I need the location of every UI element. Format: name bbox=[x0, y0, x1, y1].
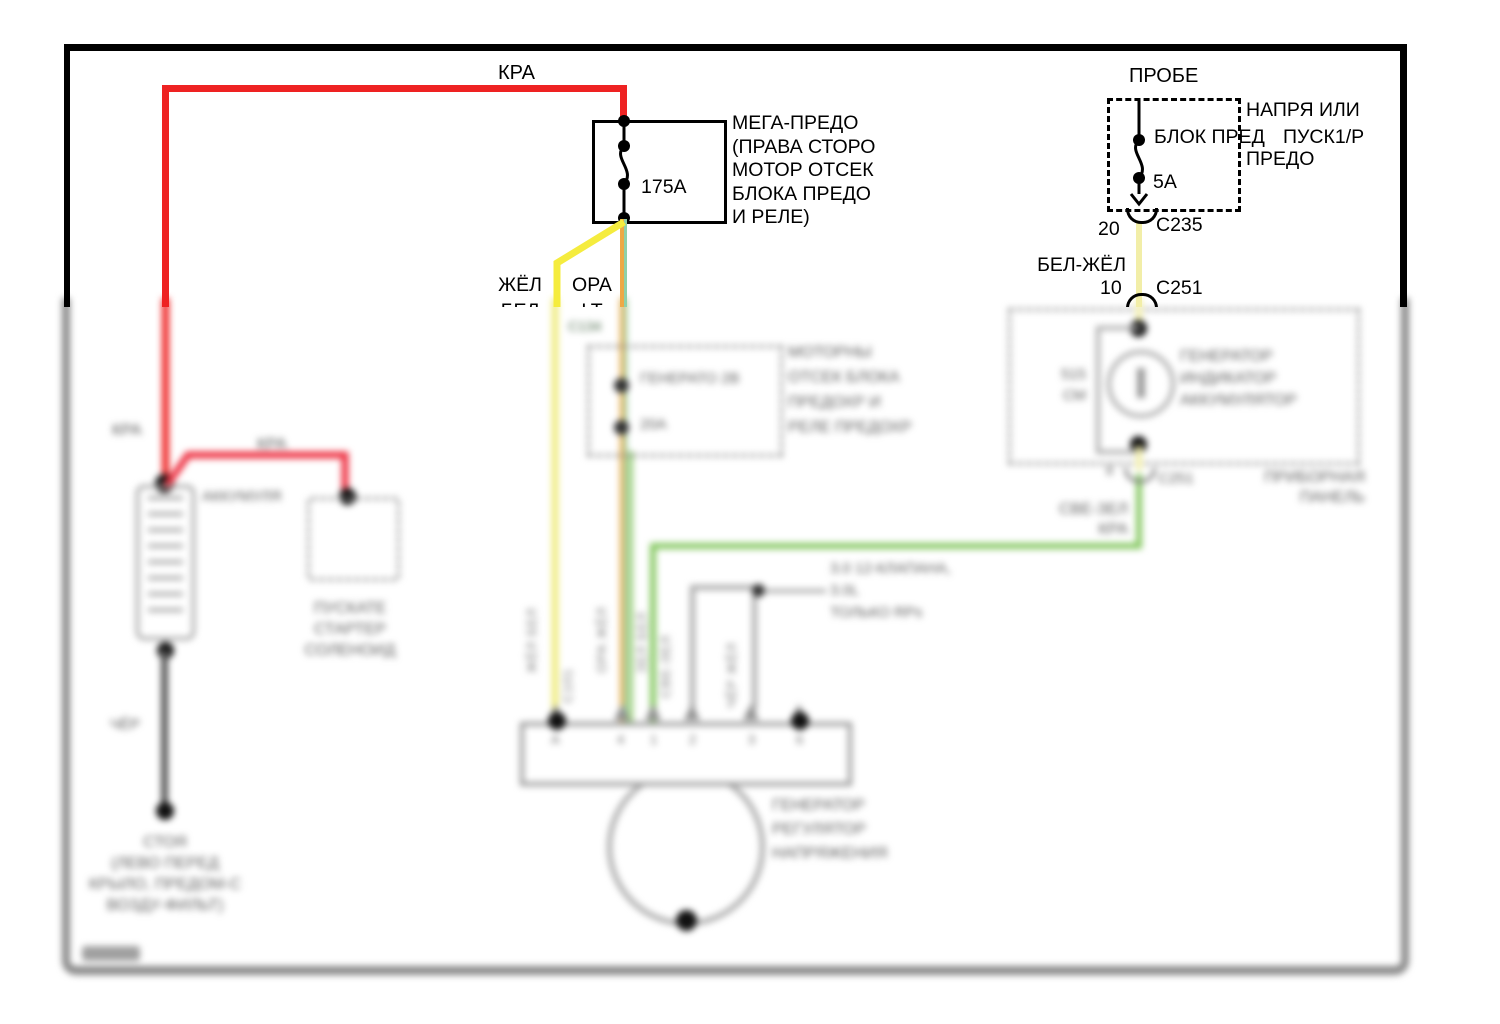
fuse-symbol-icon bbox=[1125, 96, 1155, 210]
wire-label-kra-top: КРА bbox=[498, 62, 535, 86]
frame-right bbox=[1400, 44, 1407, 307]
wire-label-chyor: ЧЁР bbox=[110, 714, 140, 735]
pin-label: 2 bbox=[689, 732, 696, 747]
indicator-exit-wire bbox=[1136, 446, 1142, 470]
pin-20-label: 20 bbox=[1098, 218, 1120, 242]
wire-label-zhel-bel: ЖЁЛ БЕЛ bbox=[494, 272, 546, 307]
vertical-label-sve-zel: СВЕ-ЗЕЛ bbox=[658, 598, 673, 698]
bar-dot-right bbox=[791, 712, 809, 730]
connector-c251-label: С251 bbox=[1156, 277, 1203, 301]
wiring-diagram-page: КРА КРА АККУМУЛЯ ПУСКАТЕ СТАРТЕР СОЛЕНОИ… bbox=[0, 0, 1500, 1024]
generator-circle bbox=[607, 768, 765, 926]
connector-arc-icon bbox=[1126, 293, 1158, 307]
blurred-diagram-section: КРА КРА АККУМУЛЯ ПУСКАТЕ СТАРТЕР СОЛЕНОИ… bbox=[0, 298, 1500, 1024]
green-wire-left-vertical bbox=[650, 543, 656, 725]
lamp-filament bbox=[1137, 368, 1145, 398]
yellow-wire-lower bbox=[552, 298, 558, 725]
frame-top bbox=[64, 44, 1407, 51]
note-pointer-line bbox=[764, 589, 826, 593]
connector-label-c134: С134 bbox=[568, 316, 601, 337]
probe-side-text-1: НАПРЯ ИЛИ bbox=[1246, 99, 1360, 123]
indicator-connector-label: С251 bbox=[1158, 468, 1194, 489]
ground-label: СТОЯ (ЛЕВО ПЕРЕД КРЫЛО, ПРЕДОМ-С ВОЗДУ-Ф… bbox=[70, 832, 260, 916]
battery-cells bbox=[148, 496, 183, 622]
pin-label: 1 bbox=[650, 732, 657, 747]
relay-box-label: МОТОРНЫ ОТСЕК БЛОКА ПРЕДОХР И РЕЛЕ ПРЕДО… bbox=[788, 340, 912, 440]
pin-label: 6 bbox=[796, 732, 803, 747]
green-wire-fusebox bbox=[628, 451, 633, 725]
bar-dot-left bbox=[548, 712, 566, 730]
wire-label-bel-zhel: БЕЛ-ЖЁЛ bbox=[1030, 254, 1126, 278]
pin-arrow-icon bbox=[645, 704, 661, 720]
probe-title: ПРОБЕ bbox=[1129, 65, 1198, 89]
red-wire-left-vertical bbox=[162, 85, 169, 307]
wire-label-kra-left: КРА bbox=[112, 420, 142, 441]
generator-label: ГЕНЕРАТОР РЕГУЛЯТОР НАПРЯЖЕНИЯ bbox=[772, 794, 887, 866]
mega-fuse-label: МЕГА-ПРЕДО (ПРАВА СТОРО МОТОР ОТСЕК БЛОК… bbox=[732, 112, 875, 230]
engine-fuse-box bbox=[587, 345, 783, 457]
frame-left bbox=[64, 44, 70, 307]
vertical-label-zel-bel: ЗЕЛ БЕЛ bbox=[634, 553, 649, 673]
red-wire-horizontal bbox=[162, 85, 627, 92]
pin-arrow-icon bbox=[684, 704, 700, 720]
probe-side-text-3: ПРЕДО bbox=[1246, 148, 1314, 172]
green-wire-horizontal bbox=[650, 543, 1142, 549]
black-ground-wire bbox=[161, 650, 168, 805]
engine-fuse-amp: 20А bbox=[640, 414, 667, 435]
battery-label: АККУМУЛЯ bbox=[202, 486, 281, 507]
probe-side-text-2: ПУСК1/Р bbox=[1283, 126, 1364, 150]
mega-fuse-amp: 175A bbox=[641, 176, 687, 200]
engine-fuse-label: ГЕНЕРАТО 2В bbox=[640, 368, 739, 389]
generator-bottom-dot bbox=[676, 910, 697, 931]
probe-block-label: БЛОК ПРЕД bbox=[1154, 126, 1265, 150]
pin-10-label: 10 bbox=[1100, 277, 1122, 301]
pin-label: 3 bbox=[748, 732, 755, 747]
green-wire-indicator-vertical bbox=[1136, 474, 1142, 549]
pin-arrow-icon bbox=[743, 704, 759, 720]
fuse-dot-top bbox=[614, 378, 629, 393]
connector-c235-label: С235 bbox=[1156, 214, 1203, 238]
fuse-dot-bottom bbox=[614, 420, 629, 435]
jumper-loop-wire bbox=[690, 585, 757, 710]
pin-label: A bbox=[551, 732, 560, 747]
indicator-left-label: 515 СМ bbox=[1028, 364, 1086, 406]
connector-arc-icon bbox=[1126, 208, 1158, 224]
panel-label: ПРИБОРНАЯ ПАНЕЛЬ bbox=[1230, 468, 1365, 508]
starter-solenoid-label: ПУСКАТЕ СТАРТЕР СОЛЕНОИД bbox=[288, 598, 412, 661]
fuse-symbol-icon bbox=[610, 113, 640, 225]
probe-fuse-amp: 5А bbox=[1153, 171, 1177, 195]
pin-8-label: 8 bbox=[1106, 460, 1113, 481]
vertical-label-ora-zhel: ОРА ЖЁЛ bbox=[594, 553, 609, 673]
vertical-label-zhel-bel: ЖЁЛ БЕЛ bbox=[524, 553, 539, 673]
sharp-diagram-section: КРА 175A МЕГА-ПРЕДО (ПРАВА СТОРО МОТОР О… bbox=[0, 0, 1500, 307]
battery-symbol bbox=[136, 485, 195, 640]
starter-solenoid-box bbox=[307, 497, 400, 581]
wire-label-ora-lt: ОРА LT bbox=[566, 272, 618, 307]
wire-label-kra-branch: КРА bbox=[257, 434, 287, 455]
engine-note: 3.0 12-КЛАПАНА, 3.0L ТОЛЬКО RPs bbox=[830, 558, 951, 624]
corner-stamp bbox=[82, 946, 140, 961]
pin-arrow-icon bbox=[614, 704, 630, 720]
ground-dot bbox=[156, 802, 174, 820]
wire-label-sve-zel: СВЕ-ЗЕЛ КРА bbox=[1033, 500, 1128, 540]
pin-label: 4 bbox=[617, 732, 624, 747]
indicator-right-label: ГЕНЕРАТОР ИНДИКАТОР АККУМУЛЯТОР bbox=[1180, 346, 1297, 412]
indicator-lamp-circle bbox=[1107, 350, 1175, 418]
vertical-label-c101: С101 bbox=[560, 643, 575, 703]
